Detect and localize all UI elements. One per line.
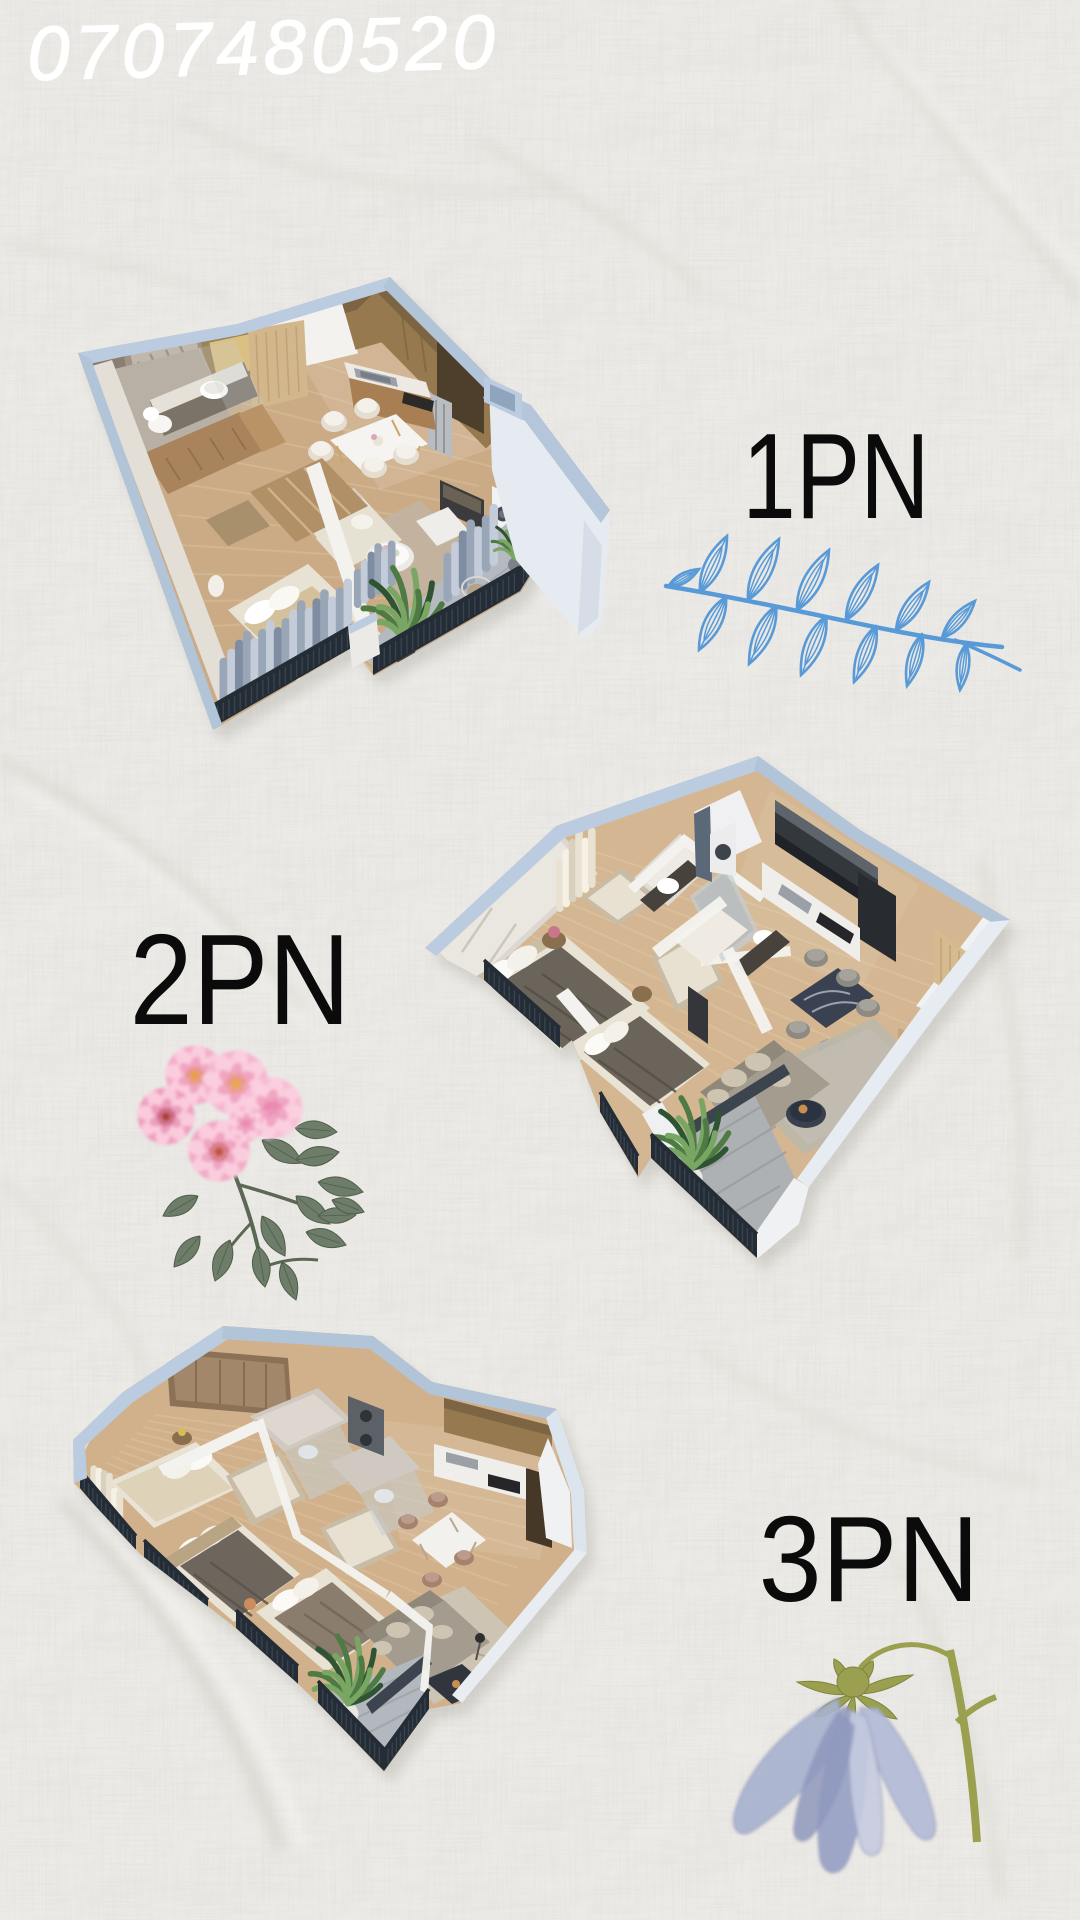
svg-text:0707480520: 0707480520 <box>26 0 501 97</box>
svg-text:1PN: 1PN <box>742 408 929 544</box>
svg-text:3PN: 3PN <box>759 1490 980 1627</box>
svg-text:2PN: 2PN <box>130 907 351 1051</box>
